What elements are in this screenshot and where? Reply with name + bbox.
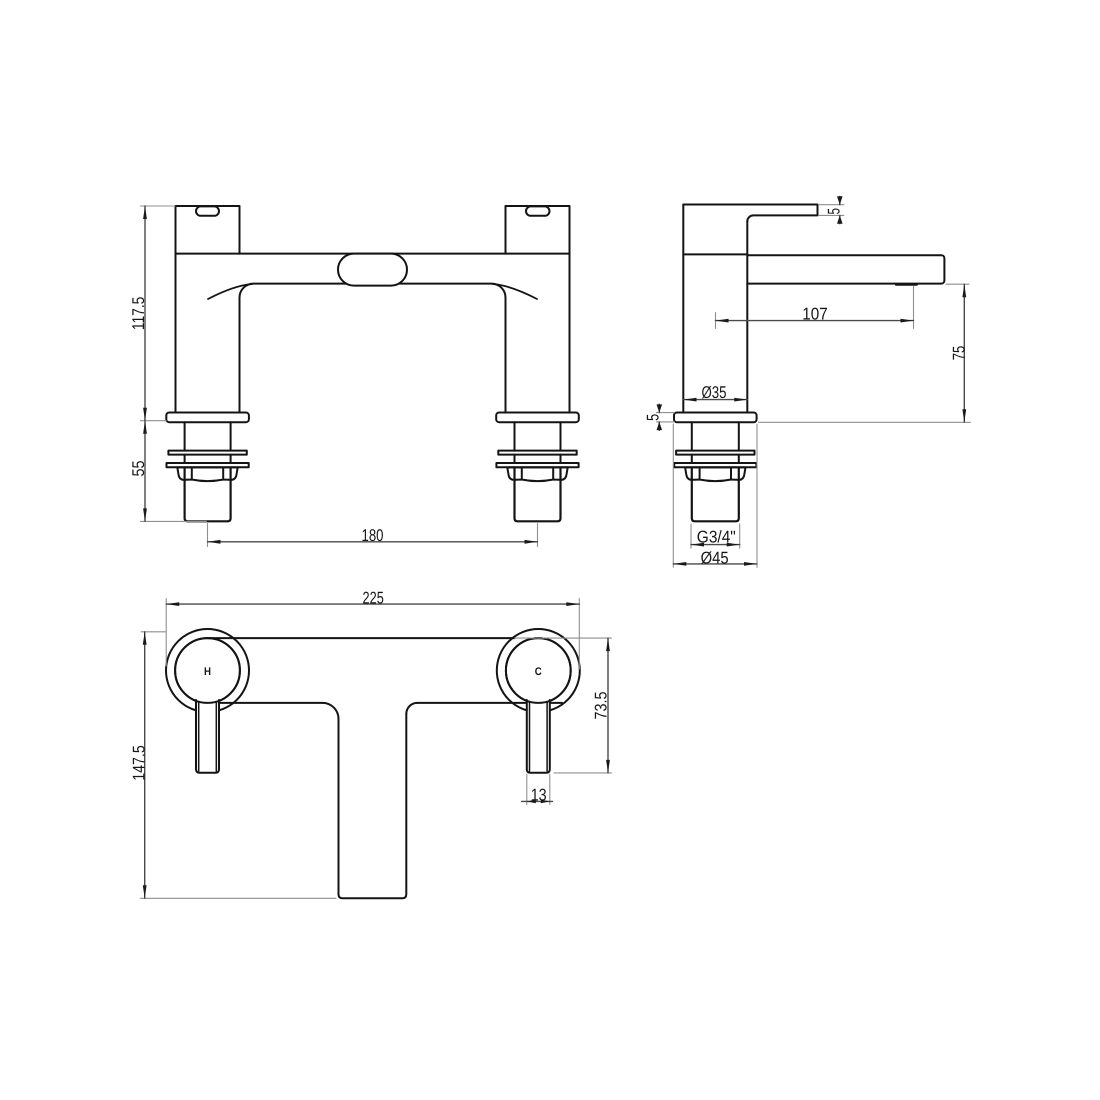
svg-text:Ø35: Ø35 [702,383,727,402]
svg-text:5: 5 [824,208,843,215]
svg-text:13: 13 [531,785,547,804]
svg-text:107: 107 [802,305,828,324]
svg-text:73.5: 73.5 [592,692,611,720]
svg-text:5: 5 [643,414,662,421]
svg-text:180: 180 [362,526,384,545]
svg-text:H: H [204,666,211,678]
svg-text:75: 75 [950,346,969,361]
svg-text:Ø45: Ø45 [701,548,729,567]
svg-text:147.5: 147.5 [129,745,148,781]
svg-text:117.5: 117.5 [129,297,148,331]
svg-text:G3/4": G3/4" [697,527,736,546]
svg-text:225: 225 [363,589,384,608]
svg-text:55: 55 [129,461,148,477]
svg-text:C: C [535,666,542,678]
